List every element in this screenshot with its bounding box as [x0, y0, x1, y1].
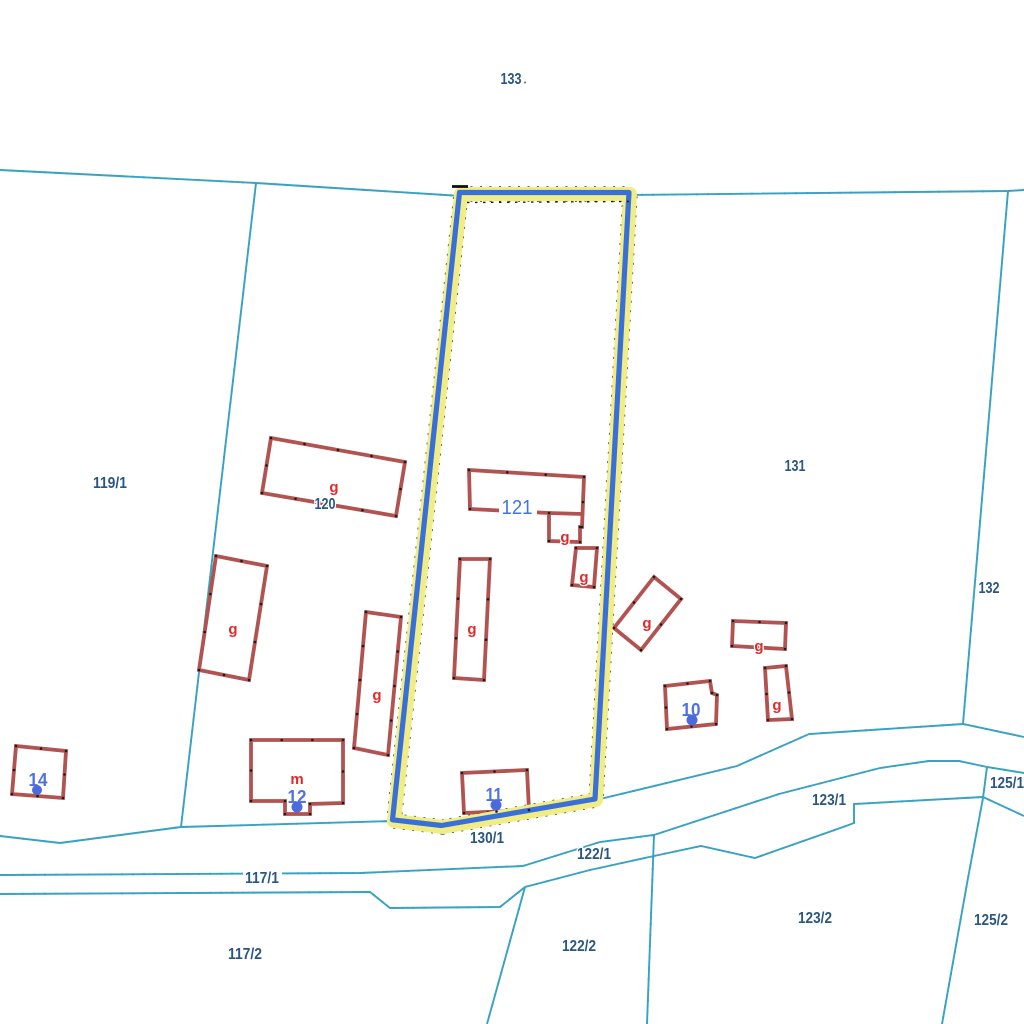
svg-text:125/1: 125/1	[990, 775, 1024, 792]
svg-text:g: g	[579, 569, 588, 586]
svg-text:g: g	[329, 479, 338, 496]
svg-text:122/1: 122/1	[577, 846, 611, 863]
svg-text:123/1: 123/1	[812, 792, 846, 809]
svg-text:g: g	[560, 529, 569, 546]
svg-text:122/2: 122/2	[562, 938, 596, 955]
svg-text:g: g	[772, 697, 781, 714]
svg-text:123/2: 123/2	[798, 910, 832, 927]
svg-text:121: 121	[502, 497, 533, 519]
svg-text:130/1: 130/1	[470, 830, 504, 847]
svg-text:g: g	[372, 687, 381, 704]
svg-text:g: g	[642, 615, 651, 632]
svg-text:132: 132	[979, 580, 1000, 597]
svg-text:117/2: 117/2	[228, 946, 262, 963]
svg-text:133: 133	[501, 71, 522, 88]
svg-text:117/1: 117/1	[245, 870, 279, 887]
svg-text:125/2: 125/2	[974, 912, 1008, 929]
svg-text:131: 131	[785, 458, 806, 475]
svg-text:g: g	[467, 621, 476, 638]
svg-text:119/1: 119/1	[93, 475, 127, 492]
svg-text:g: g	[228, 621, 237, 638]
svg-text:120: 120	[315, 496, 336, 513]
svg-text:g: g	[754, 638, 763, 655]
svg-text:m: m	[290, 771, 303, 788]
